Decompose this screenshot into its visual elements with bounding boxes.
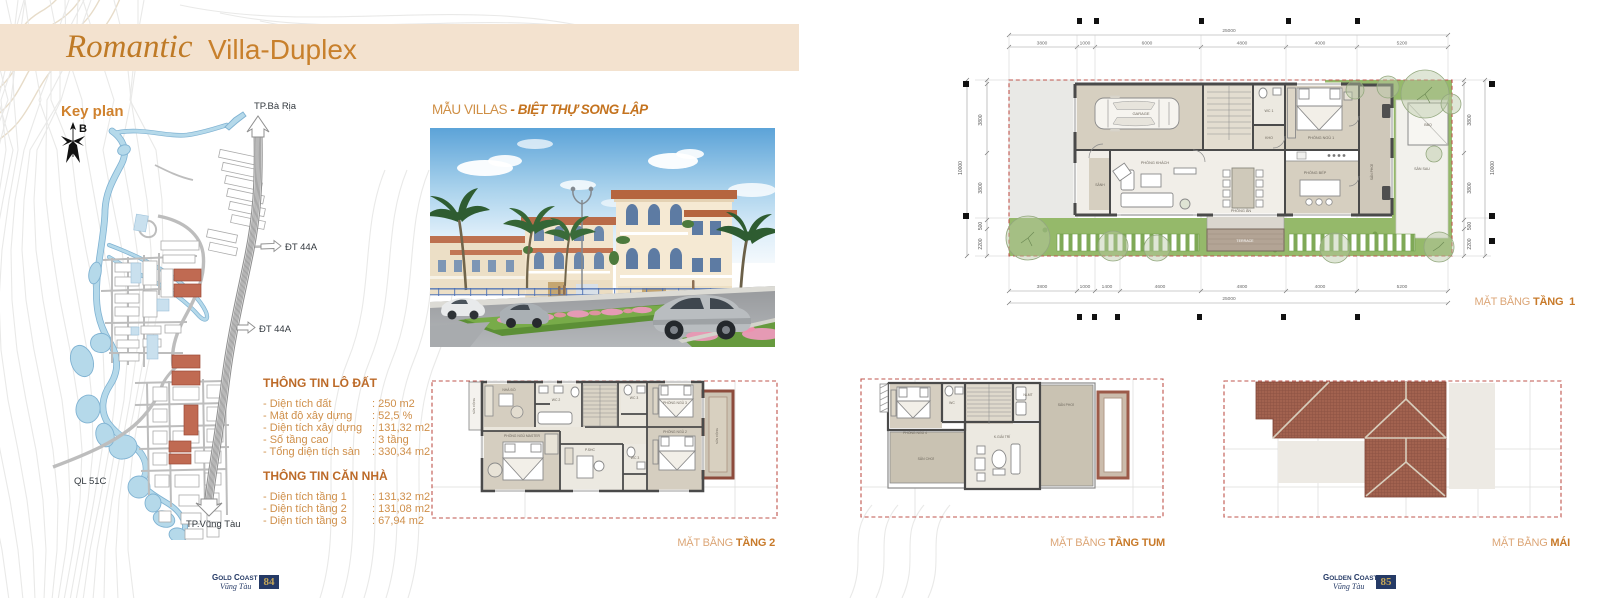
svg-text:PHÒNG KHÁCH: PHÒNG KHÁCH bbox=[1141, 160, 1170, 165]
svg-text:K.GIẢI TRÍ: K.GIẢI TRÍ bbox=[994, 434, 1010, 439]
svg-text:P.SHC: P.SHC bbox=[585, 448, 595, 452]
svg-text:ĐT 44A: ĐT 44A bbox=[259, 324, 292, 335]
svg-text:SÂN CỘNG: SÂN CỘNG bbox=[714, 427, 719, 444]
svg-text:PHÒNG NGỦ 3: PHÒNG NGỦ 3 bbox=[663, 400, 687, 405]
svg-text:TERRACE: TERRACE bbox=[1236, 239, 1254, 243]
svg-text:SÂN PHƠI: SÂN PHƠI bbox=[1058, 403, 1075, 407]
svg-text:WC 2: WC 2 bbox=[552, 398, 561, 402]
svg-text:3800: 3800 bbox=[978, 182, 984, 193]
svg-text:25000: 25000 bbox=[1222, 296, 1236, 302]
svg-text:SÂN CHƠI: SÂN CHƠI bbox=[918, 457, 935, 461]
svg-text:QL 51C: QL 51C bbox=[74, 476, 107, 487]
svg-text:4000: 4000 bbox=[1315, 284, 1326, 290]
svg-text:3800: 3800 bbox=[1037, 284, 1048, 290]
svg-text:2200: 2200 bbox=[1467, 238, 1473, 249]
svg-text:WC 1: WC 1 bbox=[1265, 109, 1274, 113]
svg-text:4600: 4600 bbox=[1155, 284, 1166, 290]
svg-text:BBQ: BBQ bbox=[1424, 123, 1432, 127]
svg-text:WC 3: WC 3 bbox=[631, 456, 640, 460]
svg-text:25000: 25000 bbox=[1222, 28, 1236, 34]
svg-text:5200: 5200 bbox=[1397, 284, 1408, 290]
svg-text:1400: 1400 bbox=[1102, 284, 1113, 290]
svg-text:PHÒNG NGỦ 2: PHÒNG NGỦ 2 bbox=[663, 429, 687, 434]
svg-text:6000: 6000 bbox=[1142, 41, 1153, 47]
svg-text:1000: 1000 bbox=[1080, 284, 1091, 290]
svg-text:B: B bbox=[79, 123, 87, 135]
svg-text:TP.Bà Rịa: TP.Bà Rịa bbox=[254, 101, 297, 112]
svg-text:10000: 10000 bbox=[1490, 161, 1496, 175]
svg-text:3800: 3800 bbox=[1037, 41, 1048, 47]
svg-text:PHÒNG NGỦ MASTER: PHÒNG NGỦ MASTER bbox=[504, 433, 541, 438]
svg-text:4800: 4800 bbox=[1237, 41, 1248, 47]
svg-text:SÂN PHƠI: SÂN PHƠI bbox=[1370, 164, 1374, 181]
svg-text:SÂN CỘNG: SÂN CỘNG bbox=[471, 397, 476, 414]
svg-text:10000: 10000 bbox=[958, 161, 964, 175]
svg-text:4800: 4800 bbox=[1237, 284, 1248, 290]
svg-text:PHÒNG NGỦ 1: PHÒNG NGỦ 1 bbox=[1308, 135, 1335, 140]
svg-text:1000: 1000 bbox=[1080, 41, 1091, 47]
svg-text:NLMT: NLMT bbox=[1023, 393, 1032, 397]
svg-text:4000: 4000 bbox=[1315, 41, 1326, 47]
svg-text:5200: 5200 bbox=[1397, 41, 1408, 47]
svg-text:SẢNH: SẢNH bbox=[1095, 182, 1105, 187]
svg-text:PHÒNG NGỦ 4: PHÒNG NGỦ 4 bbox=[903, 430, 927, 435]
svg-text:NHÀ ĐỒ: NHÀ ĐỒ bbox=[502, 387, 516, 392]
svg-text:WC: WC bbox=[949, 401, 955, 405]
svg-text:SÂN SAU: SÂN SAU bbox=[1414, 167, 1430, 171]
svg-text:KHO: KHO bbox=[1265, 136, 1273, 140]
svg-text:WC 3: WC 3 bbox=[630, 396, 639, 400]
svg-text:PHÒNG ĂN: PHÒNG ĂN bbox=[1231, 208, 1252, 213]
svg-text:TP.Vũng Tàu: TP.Vũng Tàu bbox=[186, 519, 241, 530]
svg-text:500: 500 bbox=[1467, 222, 1473, 231]
svg-text:ĐT 44A: ĐT 44A bbox=[285, 242, 318, 253]
svg-text:3800: 3800 bbox=[978, 114, 984, 125]
svg-text:3800: 3800 bbox=[1467, 114, 1473, 125]
svg-text:2200: 2200 bbox=[978, 238, 984, 249]
svg-text:PHÒNG BẾP: PHÒNG BẾP bbox=[1304, 170, 1327, 175]
svg-text:3800: 3800 bbox=[1467, 182, 1473, 193]
svg-text:GARAGE: GARAGE bbox=[1132, 111, 1149, 116]
svg-text:500: 500 bbox=[978, 222, 984, 231]
